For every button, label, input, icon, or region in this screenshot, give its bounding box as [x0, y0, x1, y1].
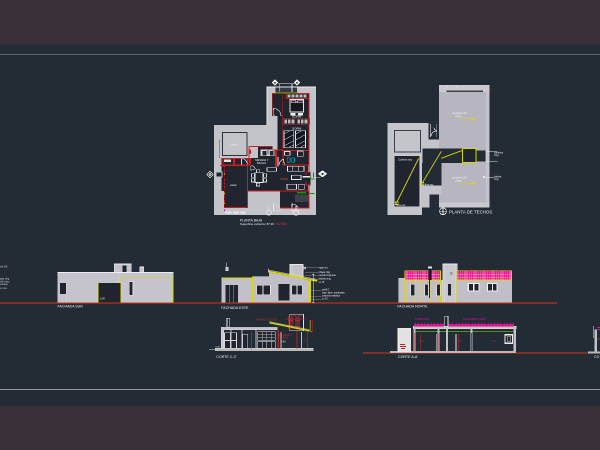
- svg-text:chapa zing.: chapa zing.: [319, 272, 331, 274]
- svg-text:CHAPA ZING.: CHAPA ZING.: [415, 318, 430, 321]
- svg-text:CIELORRASO SUSP.: CIELORRASO SUSP.: [463, 318, 487, 321]
- svg-text:0.00: 0.00: [100, 298, 105, 301]
- svg-text:perfil C: perfil C: [322, 288, 330, 291]
- svg-text:FACHADA NORTE: FACHADA NORTE: [397, 305, 428, 309]
- svg-text:estar: estar: [230, 183, 237, 187]
- svg-text:m2 Kw: m2 Kw: [276, 222, 287, 226]
- svg-text:FACHADA SUR: FACHADA SUR: [58, 305, 84, 309]
- svg-text:nte 5%: nte 5%: [0, 266, 8, 269]
- svg-text:LADRILLO VISTO: LADRILLO VISTO: [286, 318, 305, 321]
- svg-text:CO: CO: [594, 355, 600, 359]
- svg-text:babeta zing.: babeta zing.: [319, 278, 332, 281]
- svg-text:viga met.: viga met.: [319, 267, 329, 270]
- svg-text:DORM.: DORM.: [292, 115, 302, 119]
- svg-text:cv 15: cv 15: [322, 299, 328, 301]
- svg-text:libre esc.: libre esc.: [397, 204, 407, 207]
- svg-text:CORTE C-C': CORTE C-C': [216, 355, 237, 359]
- svg-text:HORMIGON VISTO: HORMIGON VISTO: [256, 319, 277, 322]
- svg-text:o. met.: o. met.: [0, 287, 8, 290]
- svg-text:FACHADA ESTE: FACHADA ESTE: [221, 306, 249, 310]
- svg-text:MONTAJE: MONTAJE: [278, 336, 289, 339]
- svg-text:zing.: zing.: [494, 154, 499, 157]
- svg-text:chapa: chapa: [455, 115, 462, 118]
- svg-text:cv 15: cv 15: [319, 282, 325, 284]
- svg-text:BACHA: BACHA: [257, 161, 266, 165]
- svg-text:evoque: evoque: [0, 283, 9, 286]
- svg-text:zing.: zing.: [494, 178, 499, 181]
- svg-text:carp. alum. anodizado: carp. alum. anodizado: [322, 291, 345, 294]
- svg-text:chapa: chapa: [455, 179, 462, 182]
- svg-text:libre esc.: libre esc.: [425, 183, 435, 186]
- svg-text:estar: estar: [281, 177, 289, 181]
- svg-text:columna metalica: columna metalica: [322, 294, 341, 297]
- svg-text:Superficie cubierta: 87,36: Superficie cubierta: 87,36: [240, 222, 274, 226]
- svg-text:Cubierta inac.: Cubierta inac.: [398, 159, 413, 162]
- svg-text:patio: patio: [232, 143, 239, 147]
- svg-text:PLANTA DE TECHOS: PLANTA DE TECHOS: [449, 210, 492, 215]
- svg-text:DORM.: DORM.: [292, 126, 302, 130]
- svg-text:cenefa zingueria: cenefa zingueria: [319, 274, 337, 277]
- svg-text:2.40: 2.40: [281, 342, 286, 344]
- svg-text:CORTE A-A': CORTE A-A': [398, 355, 418, 359]
